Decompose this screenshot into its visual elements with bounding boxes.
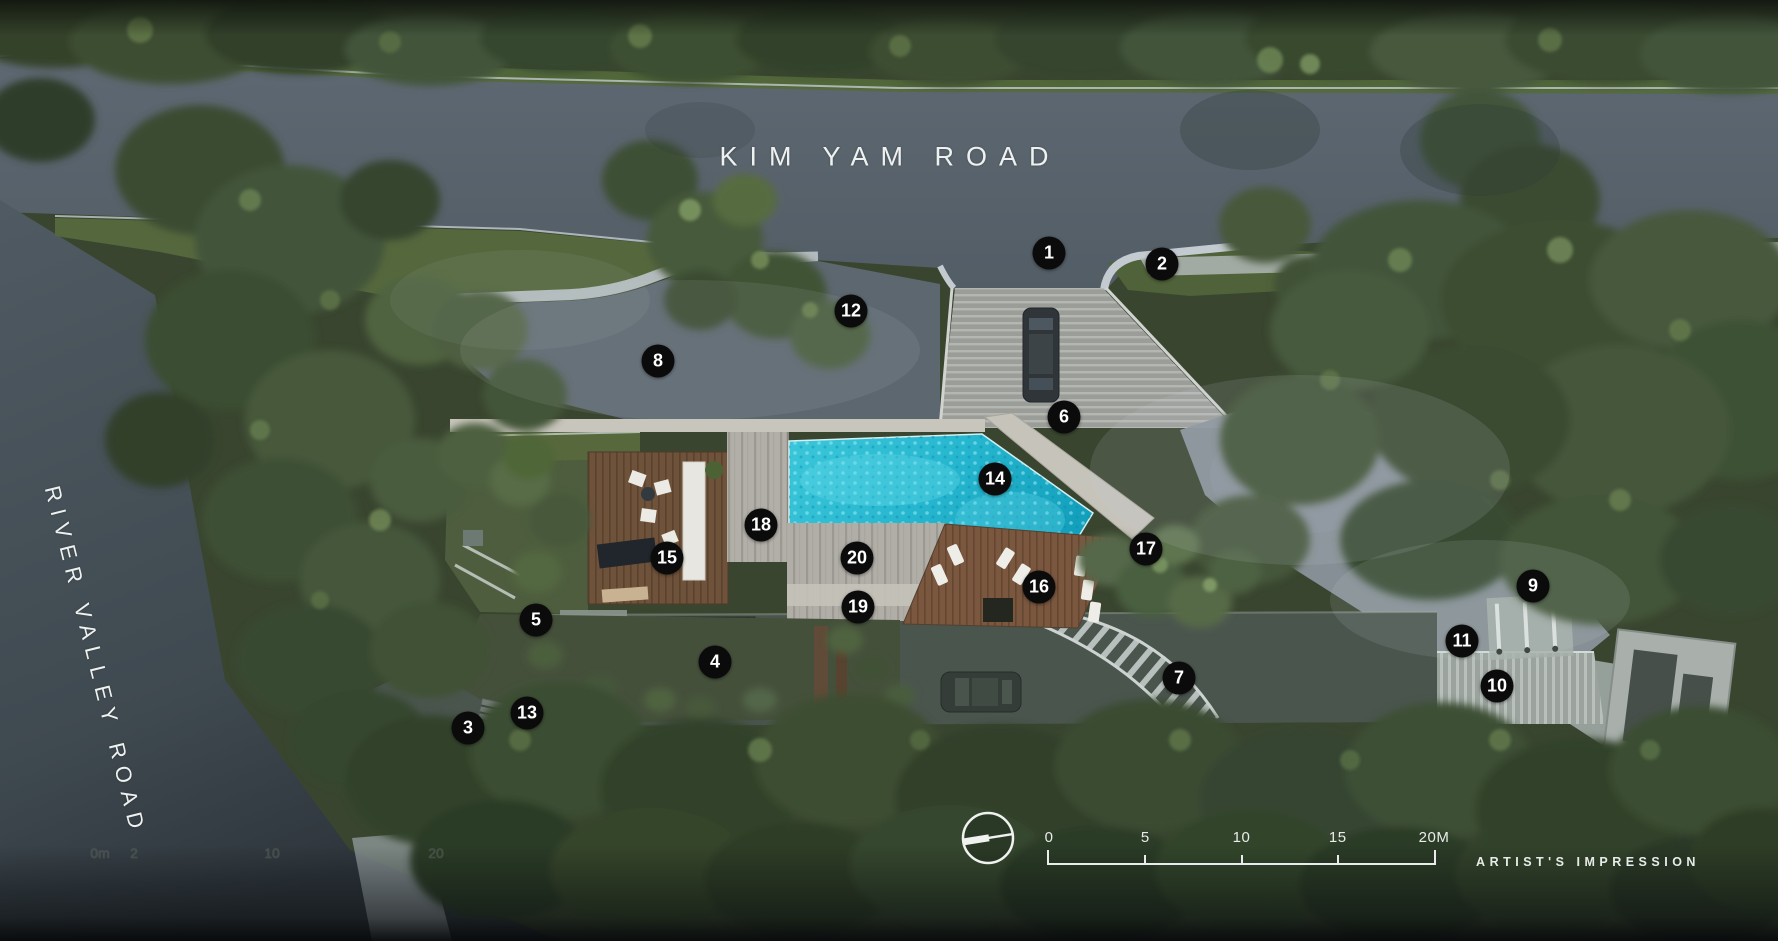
ghost-scale-2: 2 — [130, 845, 138, 861]
scale-label-20: 20M — [1419, 829, 1450, 846]
scale-bar: 0 5 10 15 20M — [1047, 850, 1436, 865]
site-marker-2: 2 — [1146, 248, 1179, 281]
scale-tick — [1144, 855, 1146, 863]
road-label-river-valley: RIVER VALLEY ROAD — [39, 483, 151, 839]
site-marker-10: 10 — [1481, 670, 1514, 703]
ghost-scale-20: 20 — [428, 845, 444, 861]
ghost-scale-0m: 0m — [90, 845, 109, 861]
site-marker-13: 13 — [511, 697, 544, 730]
site-marker-3: 3 — [452, 712, 485, 745]
scale-label-15: 15 — [1329, 829, 1347, 846]
scale-label-0: 0 — [1045, 829, 1054, 846]
site-marker-17: 17 — [1130, 533, 1163, 566]
site-marker-19: 19 — [842, 591, 875, 624]
site-marker-20: 20 — [841, 542, 874, 575]
site-marker-16: 16 — [1023, 571, 1056, 604]
site-marker-8: 8 — [642, 345, 675, 378]
site-marker-12: 12 — [835, 295, 868, 328]
site-plan-page: KIM YAM ROAD RIVER VALLEY ROAD 123456789… — [0, 0, 1778, 941]
artists-impression-credit: ARTIST'S IMPRESSION — [1476, 855, 1700, 869]
labels-layer: KIM YAM ROAD RIVER VALLEY ROAD 123456789… — [0, 0, 1778, 941]
ghost-scale-10: 10 — [264, 845, 280, 861]
scale-tick — [1241, 855, 1243, 863]
site-marker-15: 15 — [651, 542, 684, 575]
scale-label-10: 10 — [1233, 829, 1251, 846]
site-marker-18: 18 — [745, 509, 778, 542]
road-label-kim-yam: KIM YAM ROAD — [719, 142, 1060, 173]
site-marker-14: 14 — [979, 463, 1012, 496]
site-marker-4: 4 — [699, 646, 732, 679]
compass-icon — [958, 808, 1018, 868]
site-marker-1: 1 — [1033, 237, 1066, 270]
site-marker-9: 9 — [1517, 570, 1550, 603]
scale-label-5: 5 — [1141, 829, 1150, 846]
site-marker-7: 7 — [1163, 662, 1196, 695]
site-marker-6: 6 — [1048, 401, 1081, 434]
site-marker-5: 5 — [520, 604, 553, 637]
scale-tick — [1337, 855, 1339, 863]
site-marker-11: 11 — [1446, 625, 1479, 658]
